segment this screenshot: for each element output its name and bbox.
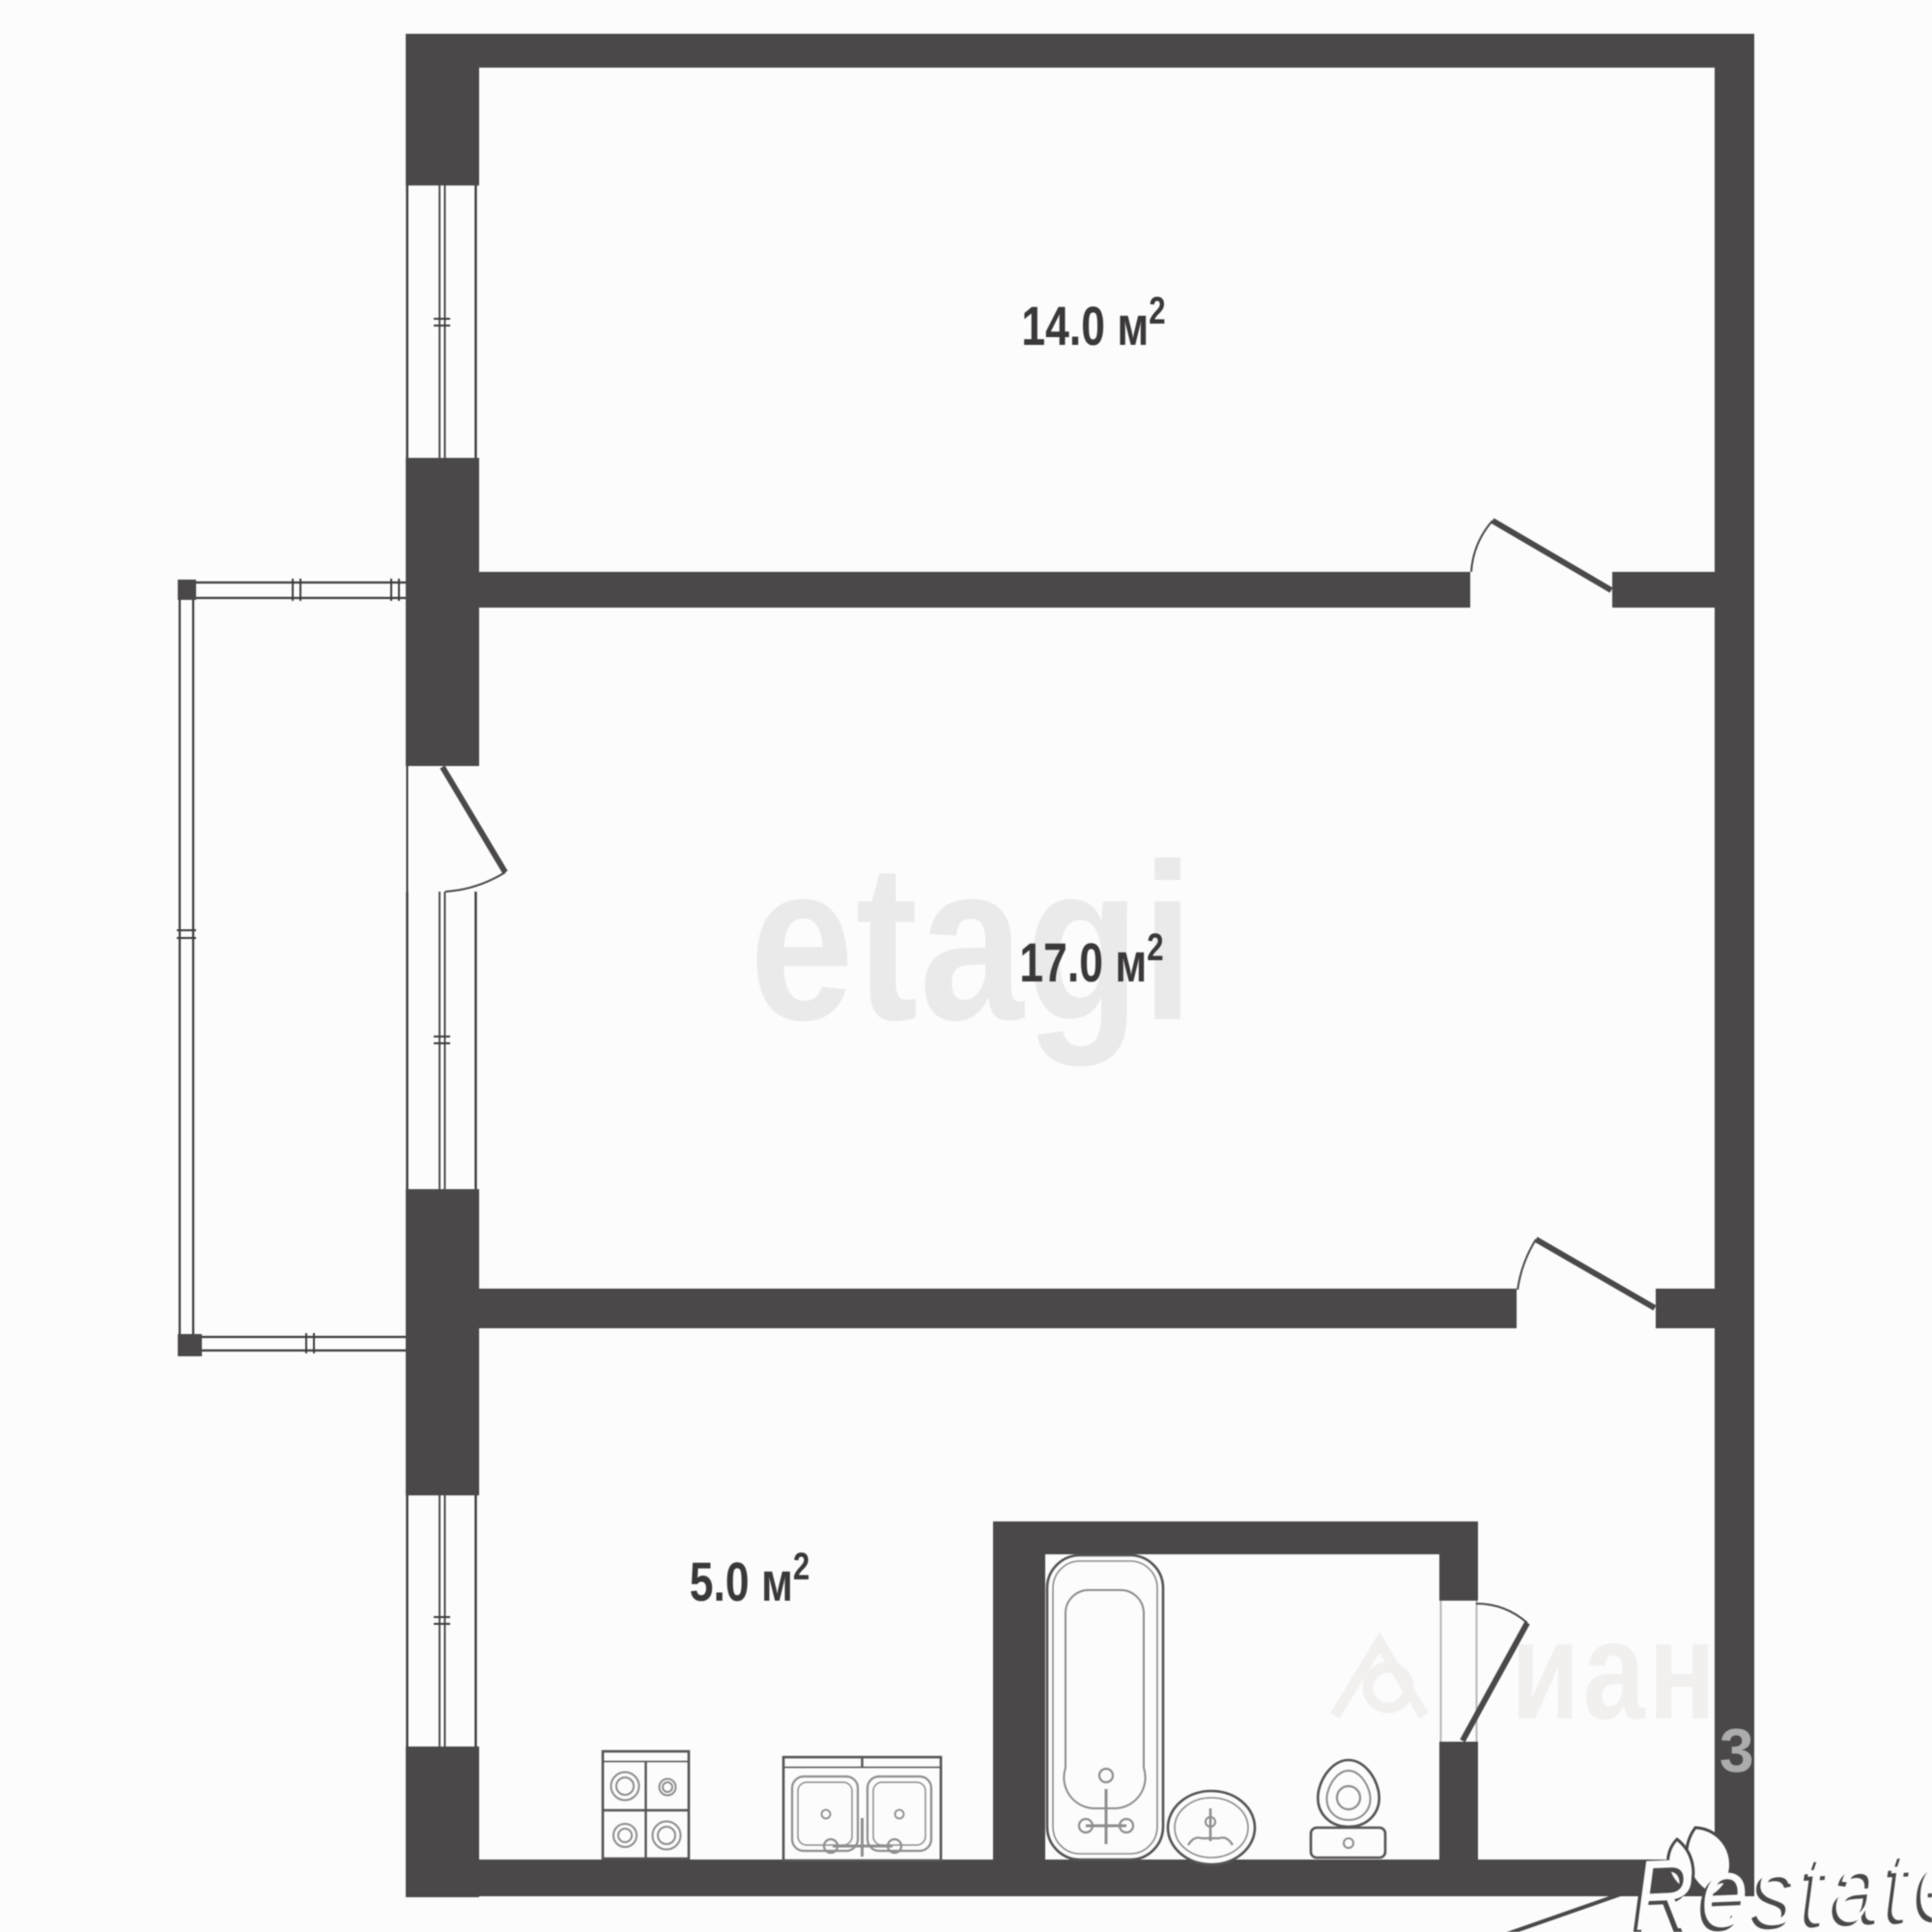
svg-text:иан: иан: [1511, 1592, 1719, 1748]
svg-text:5.0 м2: 5.0 м2: [690, 1546, 810, 1613]
svg-text:14.0 м2: 14.0 м2: [1021, 290, 1165, 357]
svg-text:17.0 м2: 17.0 м2: [1019, 926, 1163, 994]
svg-text:3: 3: [1719, 1716, 1754, 1785]
svg-text:Restate: Restate: [1632, 1827, 1932, 1932]
